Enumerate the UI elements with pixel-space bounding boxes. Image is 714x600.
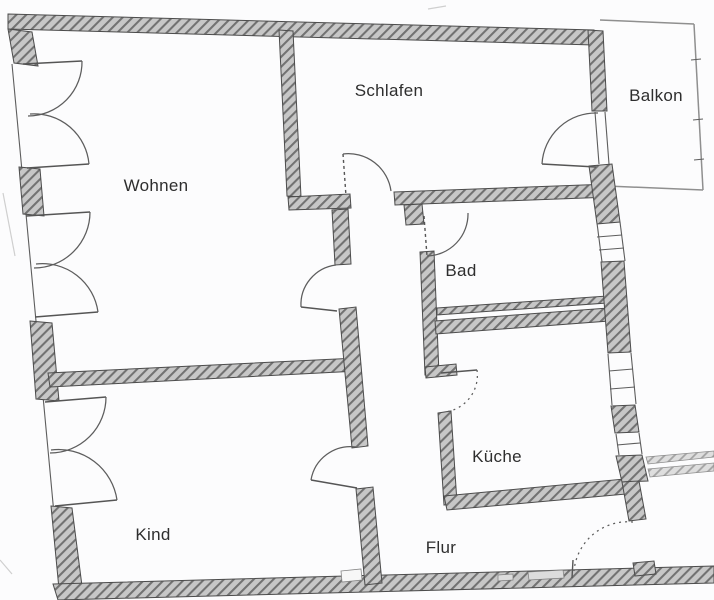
left-pier-1 — [19, 167, 44, 216]
top-exterior-wall — [8, 14, 594, 45]
right-corner-block — [616, 455, 648, 482]
door-kind — [311, 447, 357, 488]
door-balkon — [542, 113, 598, 167]
bottom-wall-ledge-1 — [498, 574, 513, 581]
room-label-kind: Kind — [135, 525, 170, 544]
balcony-door-threshold — [595, 112, 609, 164]
left-pier-2 — [30, 321, 59, 401]
bad-west-cap — [425, 364, 457, 378]
wohnen-schlafen-wall — [279, 30, 301, 197]
kueche-west-wall — [438, 411, 457, 505]
left-pier-3 — [51, 506, 82, 589]
entrance-pillar — [633, 561, 656, 576]
room-label-balkon: Balkon — [629, 86, 683, 105]
french-windows — [23, 61, 117, 506]
flur-wall-notch — [341, 569, 362, 582]
room-label-kueche: Küche — [472, 447, 522, 466]
floor-plan-drawing: Wohnen Schlafen Balkon Bad Küche Kind Fl… — [0, 0, 714, 600]
schlafen-wall-step — [404, 204, 424, 225]
bottom-wall-ledge-2 — [528, 570, 564, 580]
french-window-kind — [45, 397, 117, 506]
bottom-exterior-wall — [53, 566, 714, 600]
balcony-outline — [600, 20, 704, 190]
balcony-corner-block — [589, 164, 620, 224]
room-label-flur: Flur — [426, 538, 457, 557]
top-left-corner-pier — [8, 29, 38, 66]
room-label-schlafen: Schlafen — [355, 81, 424, 100]
kueche-window-2 — [616, 433, 642, 455]
bad-west-wall — [420, 251, 439, 375]
schlafen-bottom-wall — [394, 184, 611, 205]
right-wall-kueche-pier — [611, 405, 639, 433]
room-label-bad: Bad — [445, 261, 476, 280]
french-window-wohnen-upper — [23, 61, 89, 168]
right-wall-bad-section — [601, 261, 631, 353]
kueche-bottom-wall — [444, 478, 638, 510]
center-pier — [332, 209, 351, 265]
floor-plan-page: Wohnen Schlafen Balkon Bad Küche Kind Fl… — [0, 0, 714, 600]
kind-top-wall — [48, 358, 358, 387]
neighbor-wall-east-2 — [648, 463, 714, 477]
right-wall-entrance-jamb — [622, 481, 646, 521]
wohnen-wall-cap — [288, 194, 351, 210]
kueche-window-1 — [608, 353, 636, 405]
right-jamb-above-balcony-door — [588, 30, 607, 111]
neighbor-wall-east — [646, 451, 714, 464]
walls — [8, 14, 714, 600]
flur-west-wall-upper — [339, 307, 368, 448]
bad-window — [597, 222, 625, 262]
french-window-wohnen-lower — [26, 212, 98, 317]
door-bad — [424, 213, 468, 256]
door-wohnen — [301, 265, 337, 311]
room-label-wohnen: Wohnen — [124, 176, 189, 195]
door-schlafen — [343, 154, 391, 196]
